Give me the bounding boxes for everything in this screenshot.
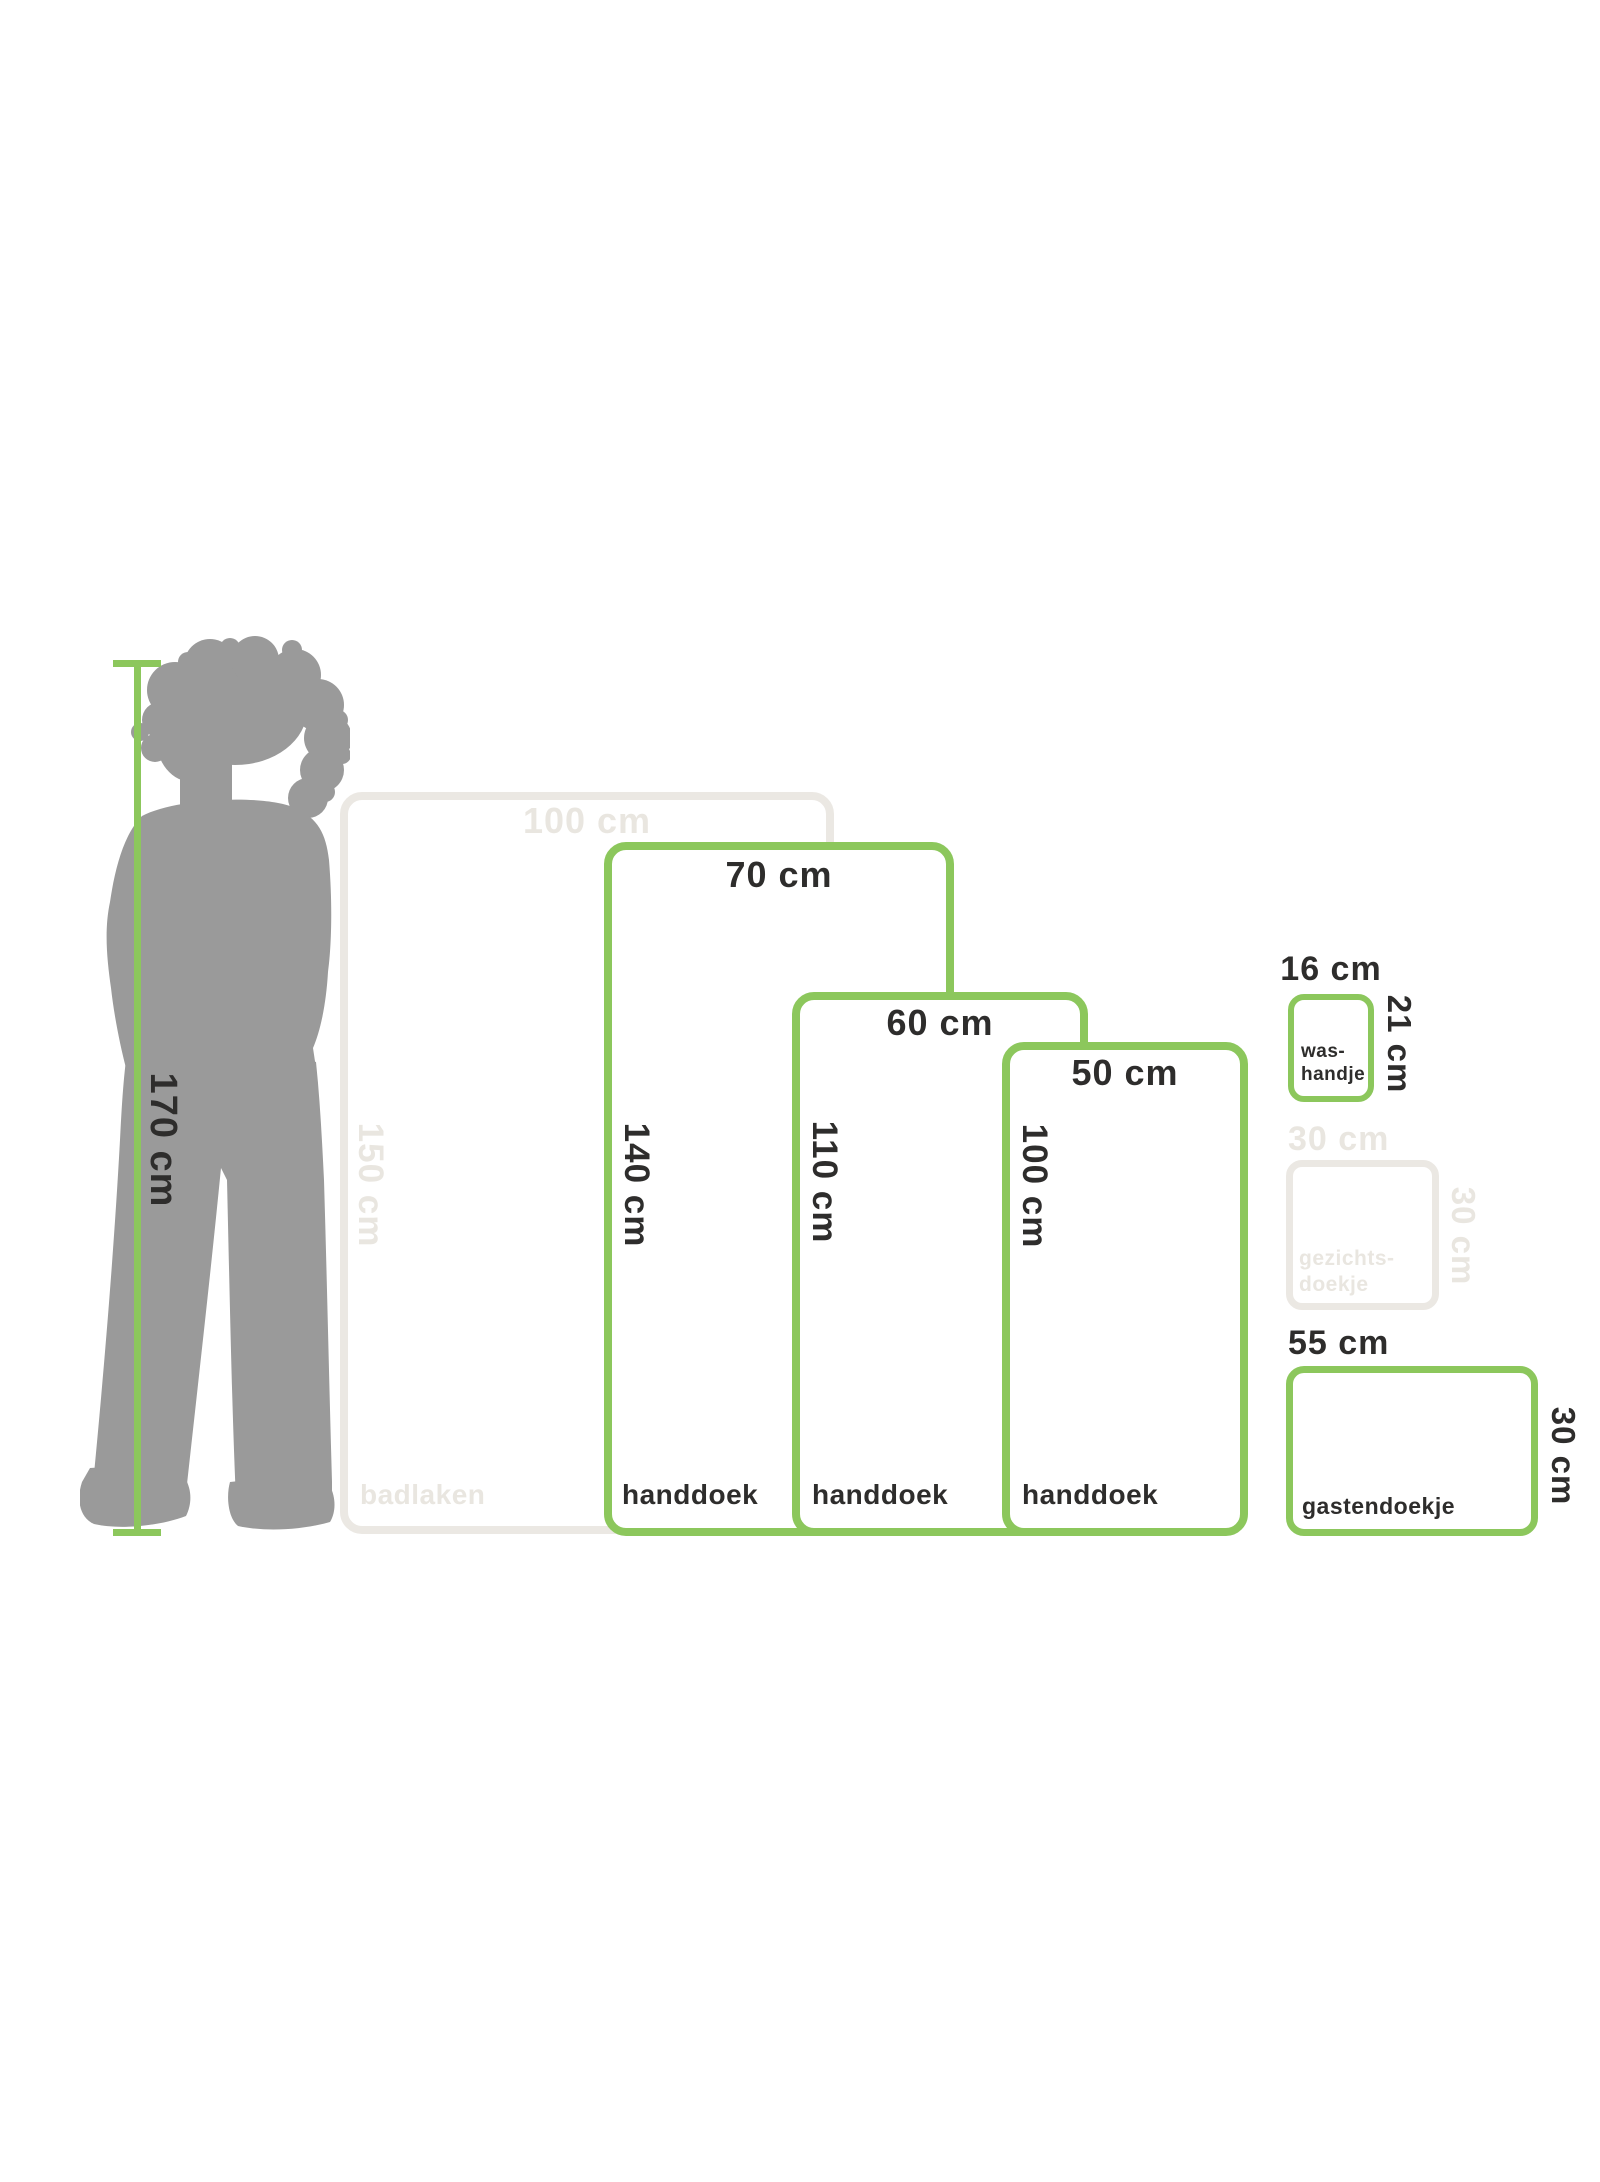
badlaken-name-label: badlaken: [360, 1478, 485, 1512]
washandje-name-line2: handje: [1301, 1064, 1365, 1085]
gezichtsdoekje-name-line2: doekje: [1299, 1273, 1369, 1296]
handdoek-middel-height-label: 110 cm: [804, 1121, 844, 1244]
ruler-bottom-cap: [113, 1529, 161, 1536]
handdoek-groot-name-label: handdoek: [622, 1478, 758, 1512]
handdoek-klein-width-label: 50 cm: [1002, 1052, 1248, 1094]
gezichtsdoekje-width-label: 30 cm: [1288, 1120, 1389, 1159]
size-box-handdoek-klein: [1002, 1042, 1248, 1536]
washandje-height-label: 21 cm: [1380, 995, 1418, 1094]
handdoek-klein-height-label: 100 cm: [1014, 1124, 1054, 1249]
handdoek-middel-width-label: 60 cm: [792, 1002, 1088, 1044]
badlaken-width-label: 100 cm: [340, 800, 834, 842]
height-ruler-line: [134, 662, 141, 1536]
handdoek-groot-height-label: 140 cm: [616, 1123, 656, 1248]
gezichtsdoekje-height-label: 30 cm: [1444, 1187, 1482, 1286]
gastendoekje-name-label: gastendoekje: [1302, 1492, 1455, 1520]
gastendoekje-height-label: 30 cm: [1544, 1407, 1582, 1506]
washandje-width-label: 16 cm: [1258, 950, 1404, 989]
gastendoekje-width-label: 55 cm: [1288, 1324, 1389, 1363]
handdoek-groot-width-label: 70 cm: [604, 854, 954, 896]
washandje-name-line1: was-: [1301, 1041, 1345, 1062]
badlaken-height-label: 150 cm: [350, 1123, 390, 1248]
handdoek-klein-name-label: handdoek: [1022, 1478, 1158, 1512]
handdoek-middel-name-label: handdoek: [812, 1478, 948, 1512]
gezichtsdoekje-name-line1: gezichts-: [1299, 1247, 1395, 1270]
person-height-label: 170 cm: [141, 1073, 184, 1208]
gezichtsdoekje-name-label: gezichts- doekje: [1299, 1246, 1395, 1297]
person-silhouette: [80, 620, 350, 1540]
size-comparison-diagram: 170 cm 100 cm 150 cm badlaken 70 cm 140 …: [0, 0, 1600, 2182]
washandje-name-label: was- handje: [1301, 1040, 1365, 1086]
